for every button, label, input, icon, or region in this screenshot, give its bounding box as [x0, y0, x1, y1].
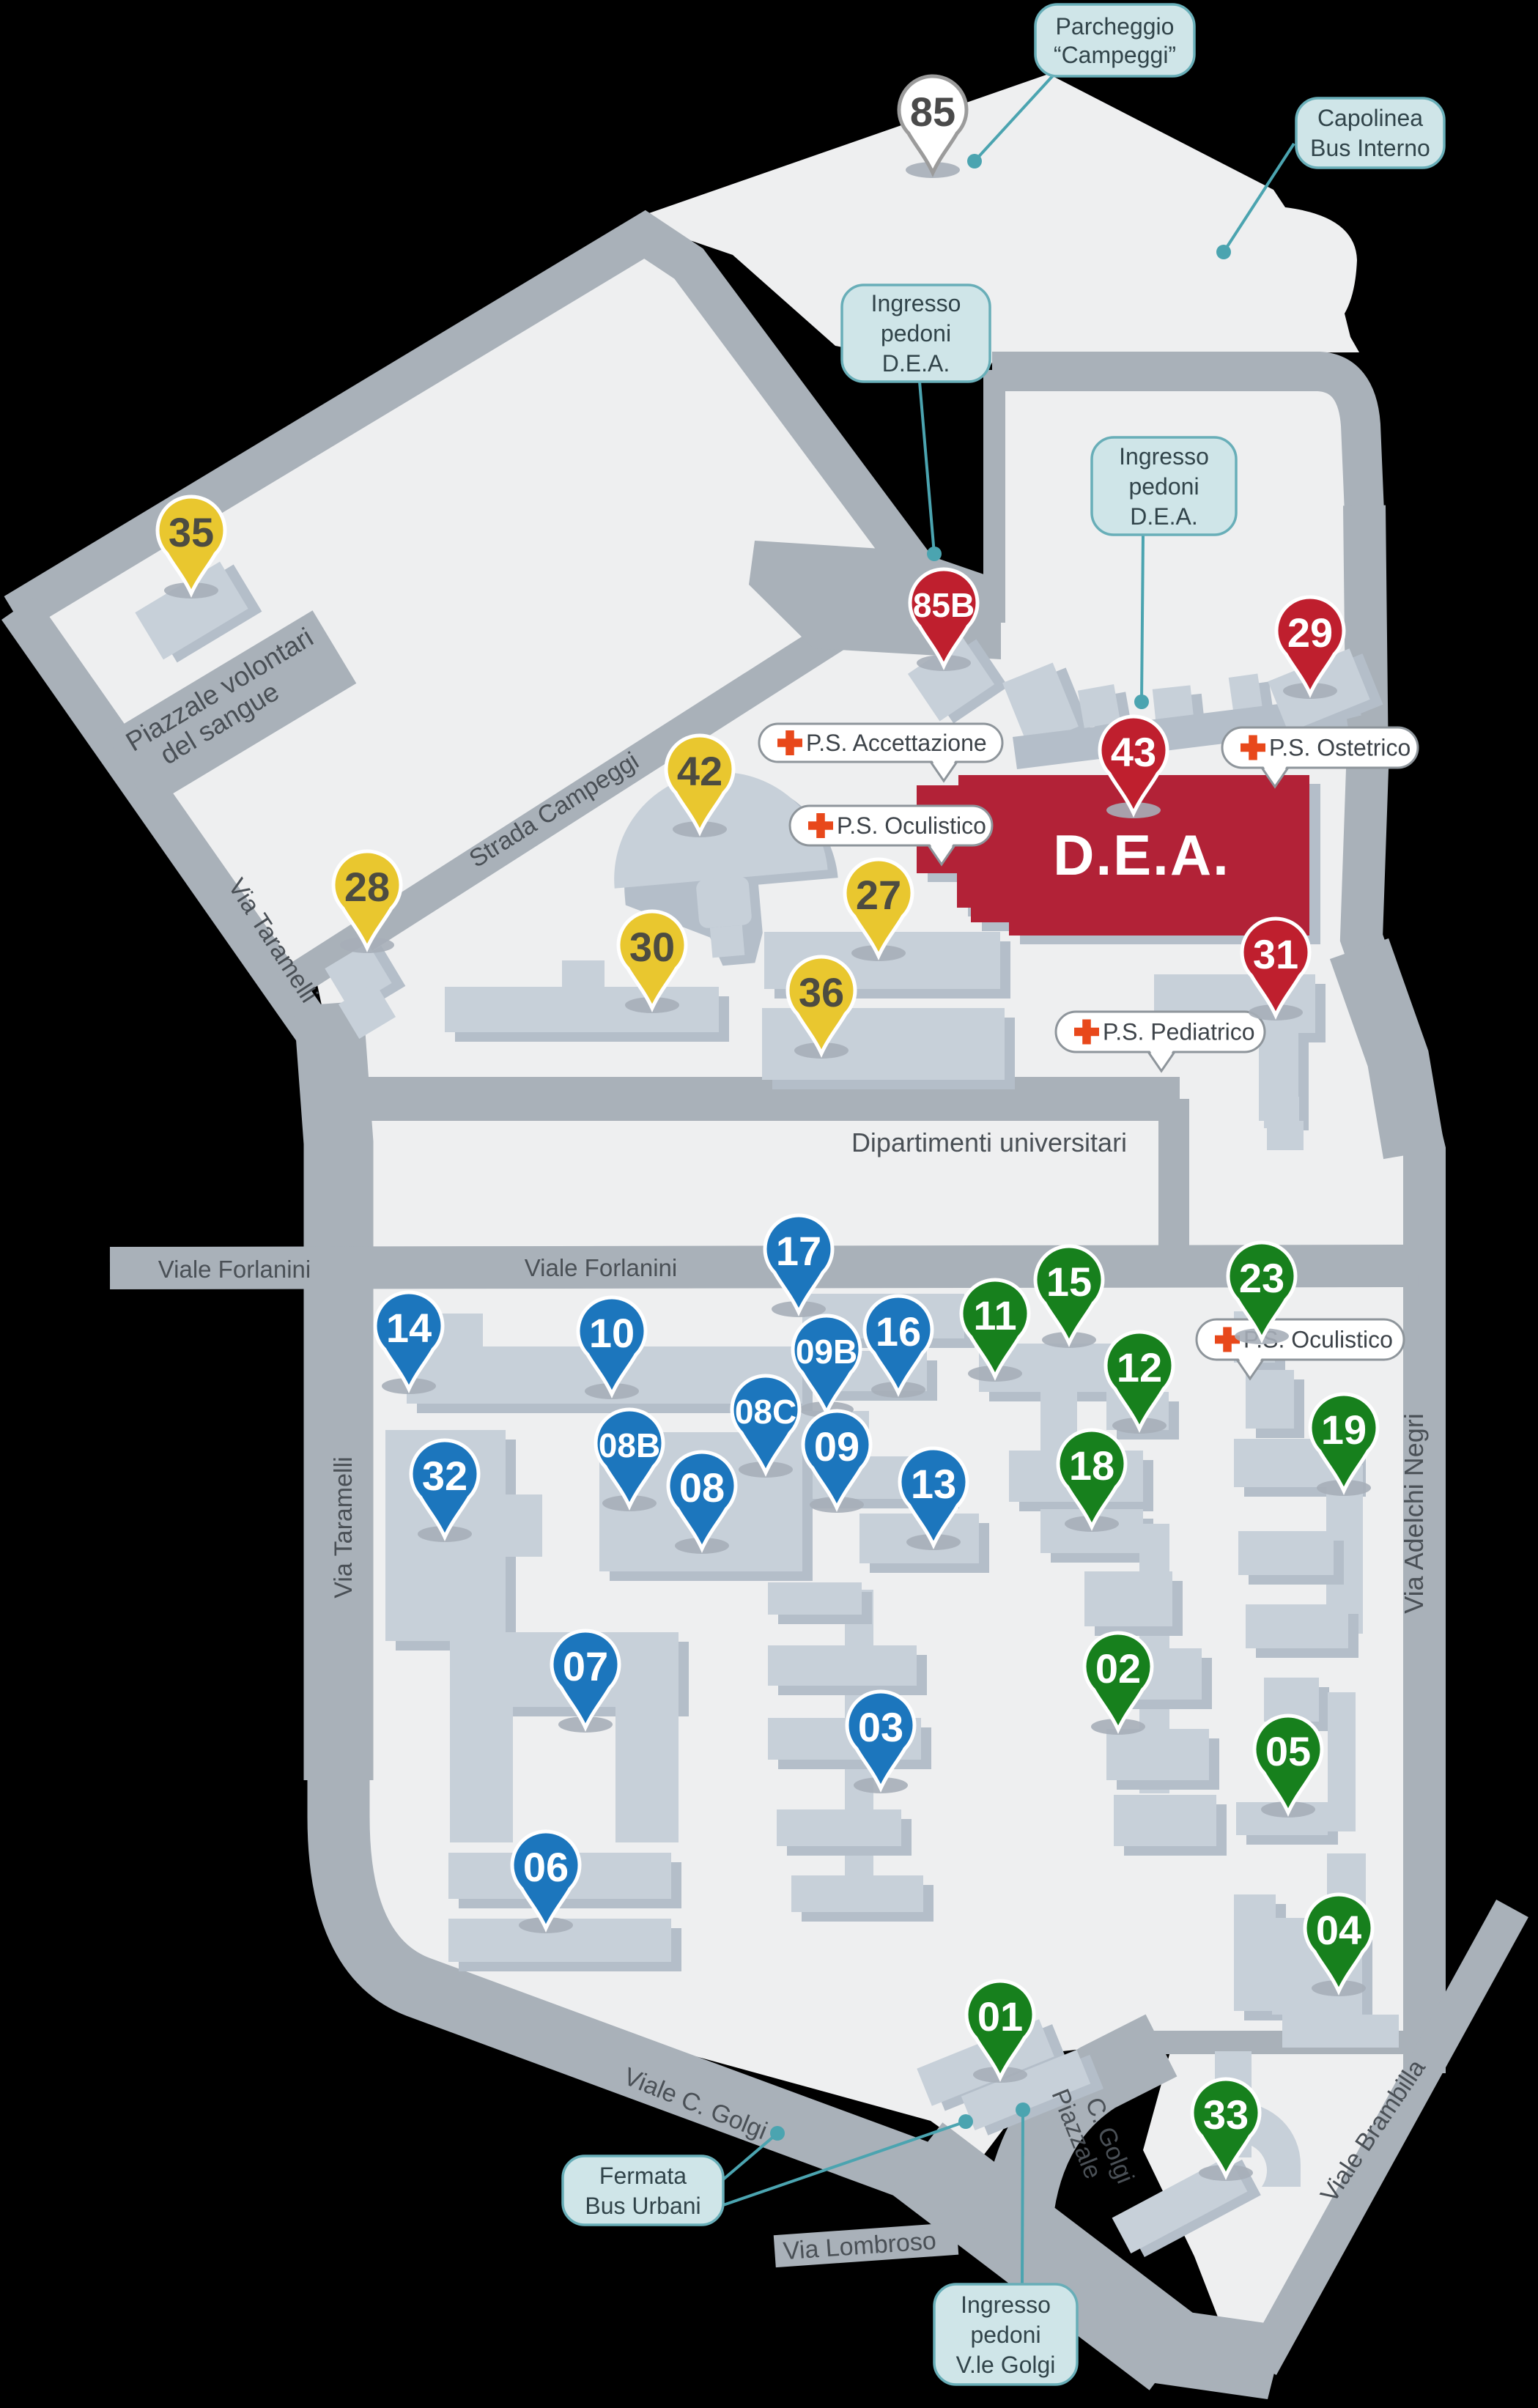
svg-text:P.S. Pediatrico: P.S. Pediatrico [1103, 1019, 1255, 1045]
svg-text:Viale Forlanini: Viale Forlanini [525, 1254, 678, 1281]
svg-text:08: 08 [679, 1464, 725, 1511]
svg-text:42: 42 [677, 748, 722, 794]
svg-text:Ingresso: Ingresso [961, 2292, 1051, 2318]
svg-text:05: 05 [1265, 1728, 1311, 1774]
svg-text:07: 07 [563, 1643, 608, 1689]
svg-text:“Campeggi”: “Campeggi” [1054, 42, 1176, 68]
svg-text:33: 33 [1203, 2092, 1249, 2138]
svg-text:03: 03 [858, 1704, 903, 1750]
svg-text:85B: 85B [913, 586, 975, 624]
svg-text:16: 16 [876, 1308, 921, 1355]
svg-text:36: 36 [799, 969, 844, 1015]
svg-text:08C: 08C [735, 1393, 796, 1431]
svg-text:23: 23 [1239, 1255, 1284, 1301]
svg-text:29: 29 [1287, 610, 1333, 656]
svg-text:P.S. Accettazione: P.S. Accettazione [806, 730, 987, 756]
svg-text:13: 13 [911, 1461, 956, 1507]
svg-text:P.S. Ostetrico: P.S. Ostetrico [1269, 735, 1411, 761]
svg-text:Ingresso: Ingresso [1119, 443, 1209, 470]
svg-text:15: 15 [1046, 1259, 1092, 1305]
svg-text:28: 28 [344, 864, 390, 910]
svg-text:Via Adelchi Negri: Via Adelchi Negri [1399, 1413, 1429, 1614]
svg-text:14: 14 [386, 1305, 432, 1351]
svg-text:31: 31 [1253, 931, 1298, 977]
svg-text:43: 43 [1111, 729, 1156, 775]
svg-text:18: 18 [1069, 1442, 1114, 1489]
svg-text:Bus Urbani: Bus Urbani [585, 2193, 700, 2219]
svg-text:D.E.A.: D.E.A. [1130, 503, 1197, 530]
svg-text:30: 30 [629, 924, 675, 970]
svg-text:08B: 08B [599, 1426, 660, 1464]
svg-text:Via Taramelli: Via Taramelli [330, 1456, 358, 1598]
svg-text:P.S. Oculistico: P.S. Oculistico [837, 812, 986, 839]
svg-text:pedoni: pedoni [881, 320, 951, 347]
svg-text:pedoni: pedoni [970, 2322, 1040, 2348]
svg-text:Fermata: Fermata [599, 2163, 687, 2189]
svg-text:Capolinea: Capolinea [1317, 105, 1423, 131]
svg-text:11: 11 [973, 1292, 1016, 1338]
svg-text:Bus Interno: Bus Interno [1310, 135, 1430, 161]
svg-text:09: 09 [814, 1423, 859, 1470]
svg-text:Ingresso: Ingresso [871, 290, 961, 316]
svg-text:06: 06 [523, 1844, 569, 1890]
svg-text:09B: 09B [796, 1333, 857, 1371]
svg-text:01: 01 [977, 1993, 1023, 2040]
svg-text:19: 19 [1321, 1407, 1367, 1453]
svg-text:04: 04 [1316, 1907, 1361, 1953]
svg-text:85: 85 [910, 89, 955, 135]
svg-text:32: 32 [422, 1453, 467, 1499]
svg-text:10: 10 [589, 1310, 635, 1356]
svg-text:D.E.A.: D.E.A. [1053, 823, 1230, 887]
svg-text:V.le Golgi: V.le Golgi [956, 2352, 1056, 2378]
svg-text:D.E.A.: D.E.A. [882, 350, 950, 377]
svg-text:pedoni: pedoni [1128, 473, 1199, 500]
svg-text:Dipartimenti universitari: Dipartimenti universitari [851, 1127, 1127, 1157]
svg-text:27: 27 [856, 872, 901, 918]
svg-text:17: 17 [776, 1228, 821, 1274]
svg-text:02: 02 [1095, 1645, 1141, 1692]
svg-text:12: 12 [1117, 1344, 1162, 1390]
svg-text:Viale Forlanini: Viale Forlanini [158, 1256, 311, 1283]
svg-text:Parcheggio: Parcheggio [1056, 13, 1175, 40]
svg-text:35: 35 [169, 509, 214, 555]
